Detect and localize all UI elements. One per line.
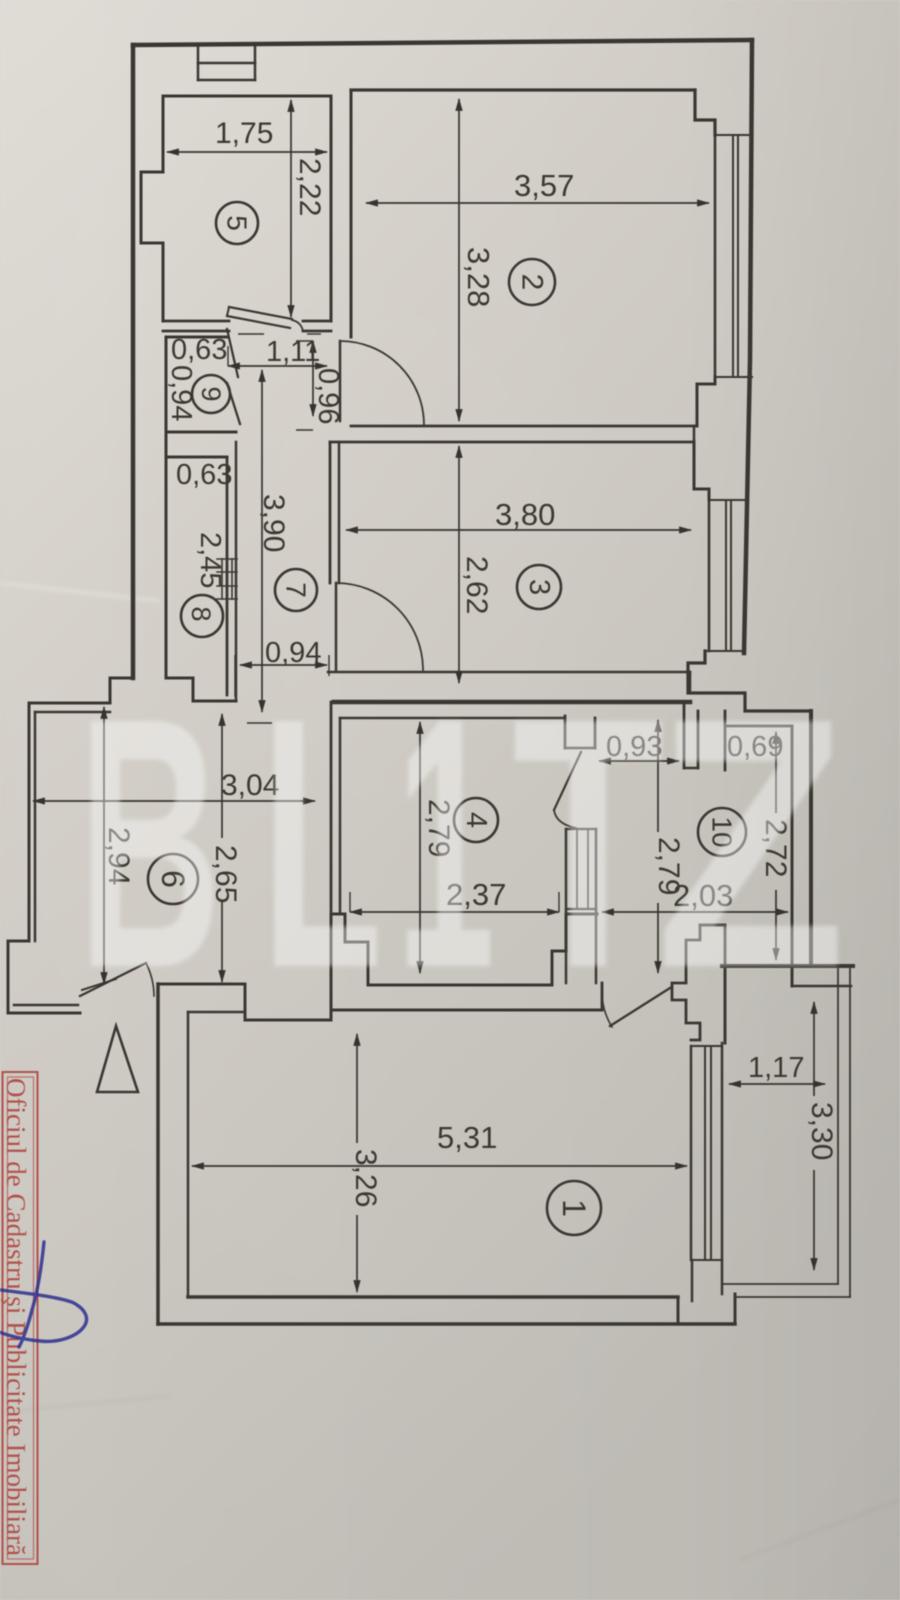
svg-text:0,63: 0,63 — [171, 334, 227, 366]
svg-text:3,26: 3,26 — [349, 1149, 382, 1207]
svg-text:3,80: 3,80 — [495, 497, 555, 532]
svg-text:3,90: 3,90 — [257, 494, 290, 552]
svg-text:9: 9 — [196, 386, 226, 401]
svg-text:2,62: 2,62 — [460, 556, 493, 614]
svg-text:Z: Z — [655, 644, 846, 1042]
svg-text:7: 7 — [281, 582, 312, 598]
svg-text:2,22: 2,22 — [293, 158, 326, 216]
svg-text:2,45: 2,45 — [194, 532, 226, 588]
svg-text:2: 2 — [516, 274, 549, 291]
svg-text:B: B — [78, 645, 222, 1042]
svg-text:1: 1 — [396, 643, 495, 1041]
svg-text:3: 3 — [523, 579, 555, 595]
svg-text:0,96: 0,96 — [312, 368, 344, 424]
svg-text:T: T — [512, 645, 664, 1042]
svg-text:1,17: 1,17 — [748, 1052, 804, 1084]
svg-text:5: 5 — [222, 215, 253, 231]
svg-text:8: 8 — [186, 606, 216, 621]
svg-text:3,28: 3,28 — [461, 247, 496, 307]
svg-text:1,75: 1,75 — [215, 117, 273, 150]
svg-text:Oficiul de Cadastru şi Publici: Oficiul de Cadastru şi Publicitate Imobi… — [1, 1078, 31, 1556]
svg-text:L: L — [261, 645, 383, 1042]
svg-text:3,30: 3,30 — [805, 1102, 838, 1160]
svg-text:5,31: 5,31 — [437, 1120, 497, 1155]
svg-text:1: 1 — [556, 1199, 592, 1217]
svg-text:0,63: 0,63 — [176, 459, 232, 491]
svg-text:1,11: 1,11 — [266, 336, 320, 368]
svg-text:3,57: 3,57 — [514, 168, 574, 203]
